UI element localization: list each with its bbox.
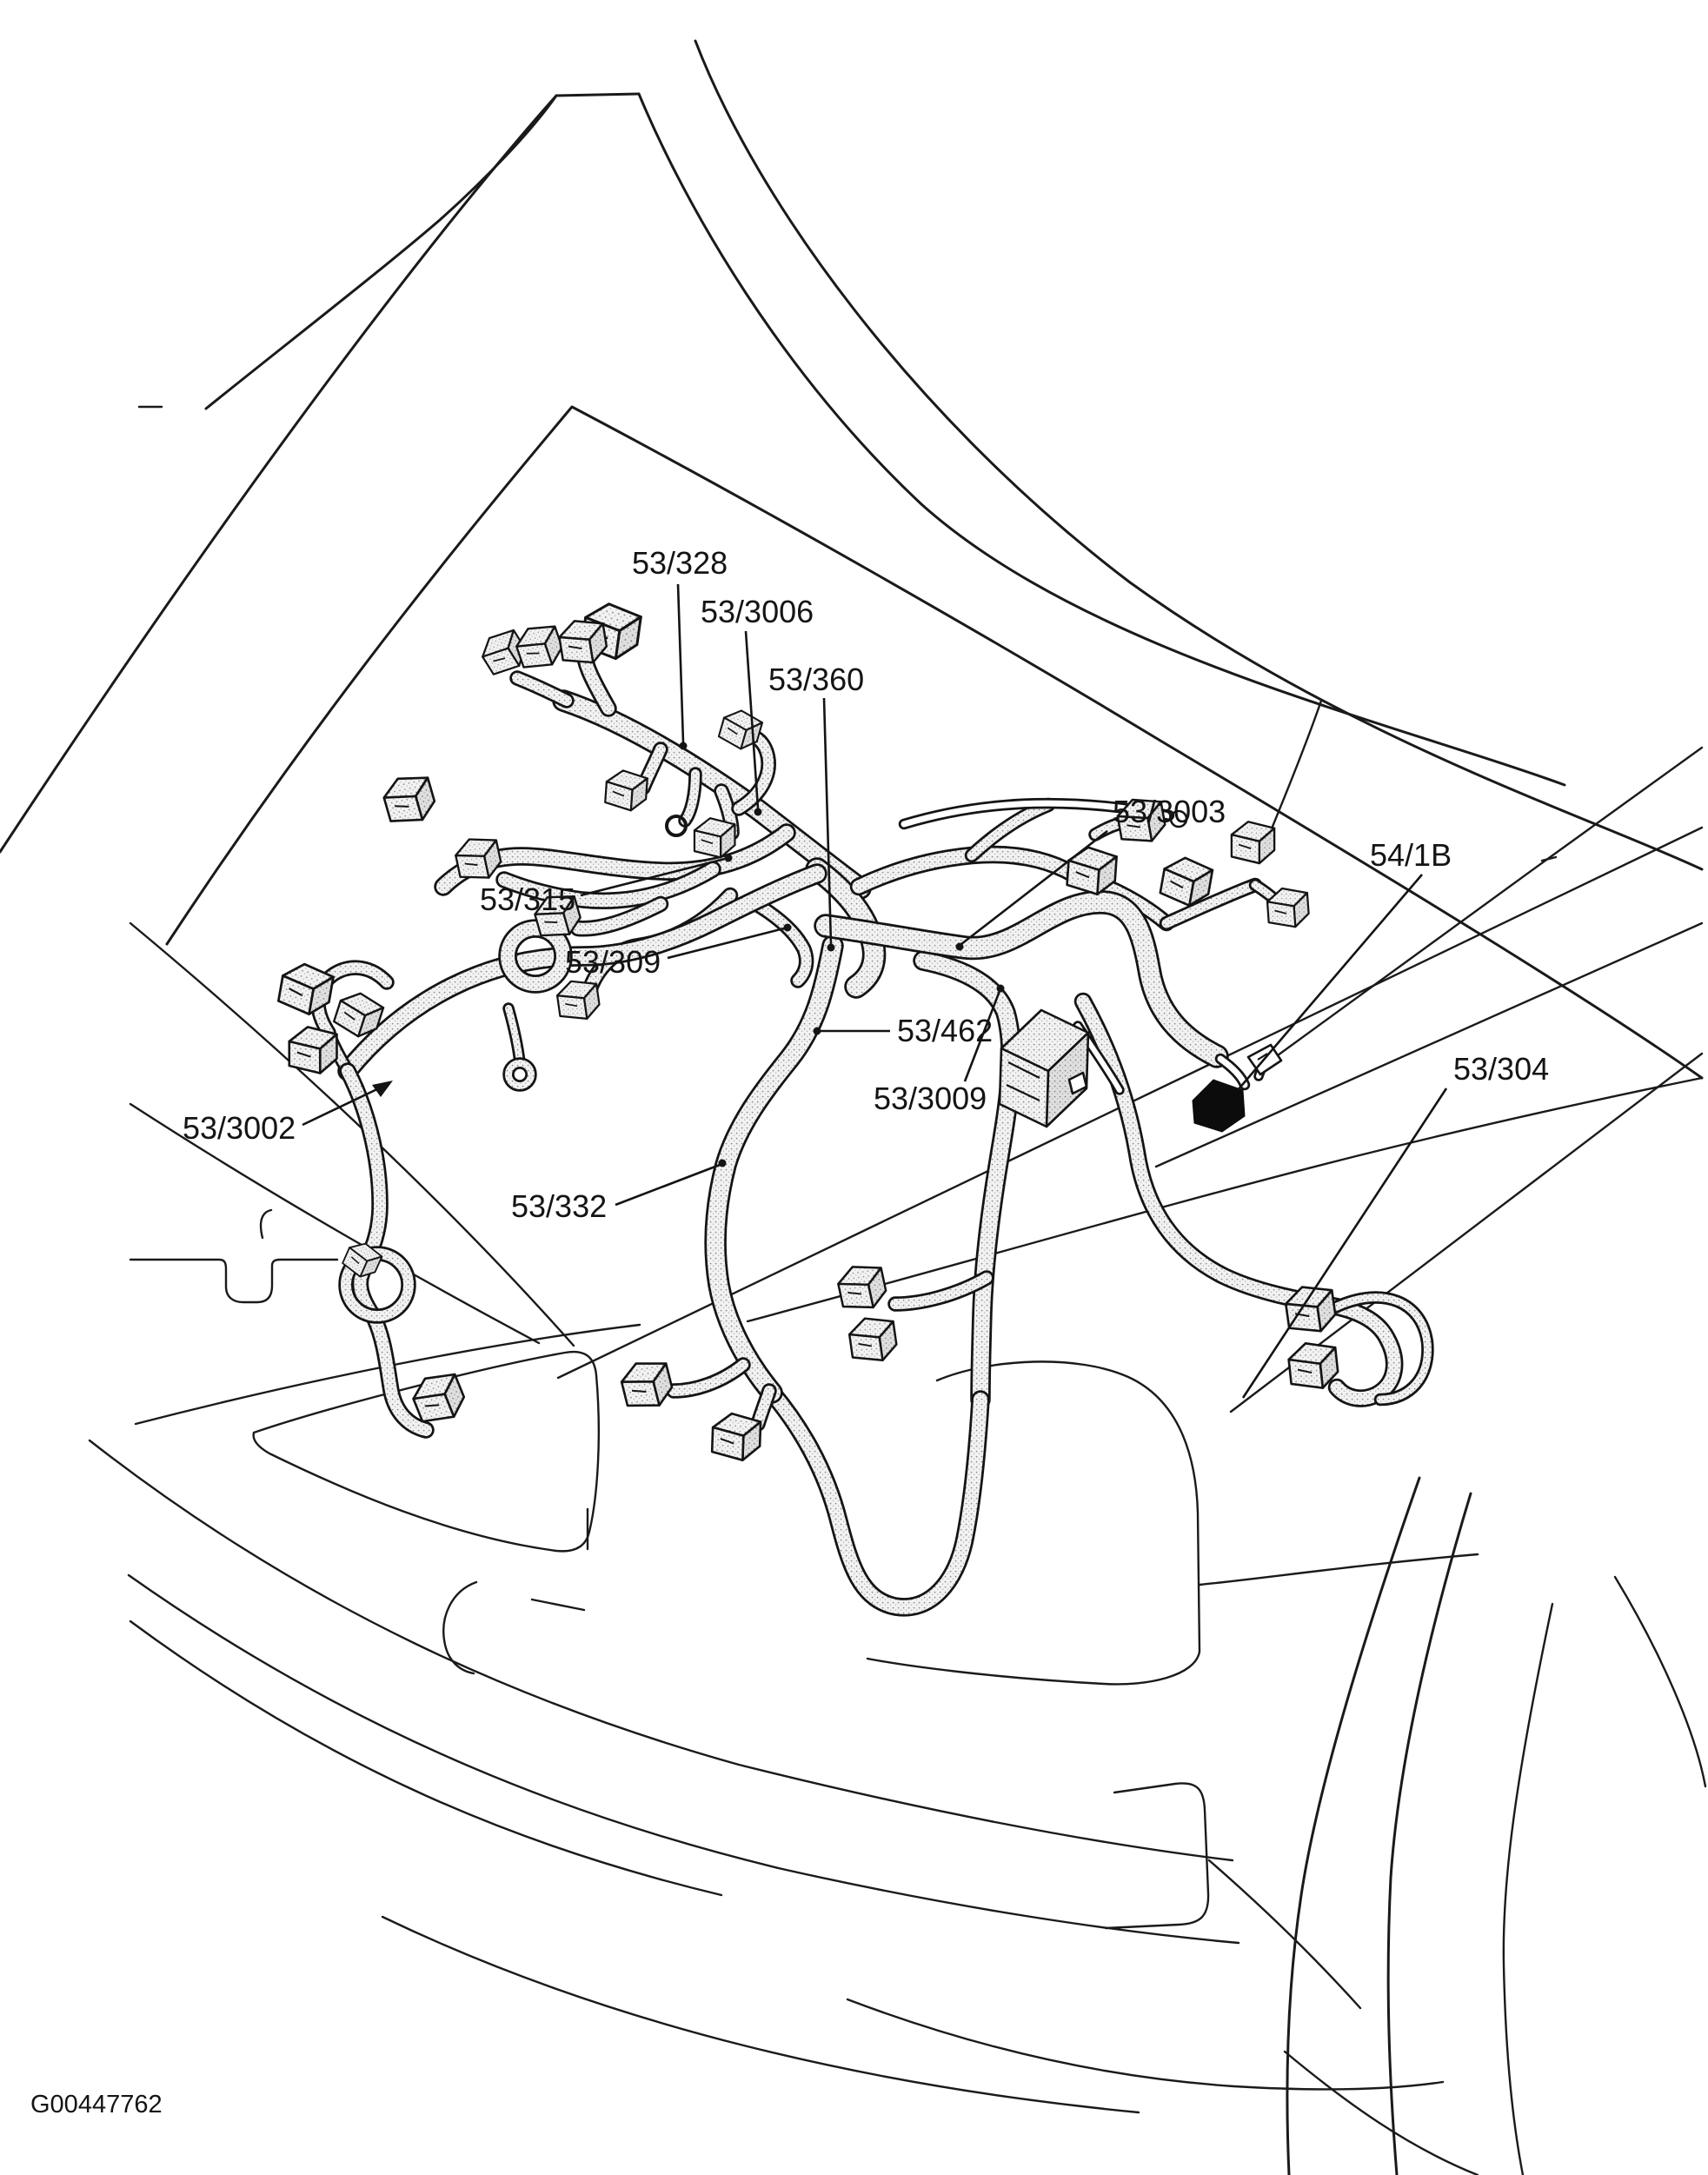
callout-53-328: 53/328 [632, 545, 728, 581]
bumper-lower-1 [382, 1917, 1139, 2112]
bumper-sweep-2 [129, 1575, 1239, 1943]
connector-icon [693, 817, 737, 858]
callout-53-315: 53/315 [480, 881, 575, 917]
droop-loop [772, 1393, 980, 1607]
figure-id: G00447762 [30, 2091, 163, 2118]
car-body-outline [0, 41, 1705, 2175]
hood-inner-edge [167, 407, 1702, 1078]
headlight-bracket [130, 1260, 337, 1302]
hood-peak-left [0, 94, 639, 852]
headlight-bracket-curl [261, 1210, 271, 1238]
connector-icon [276, 960, 336, 1018]
airbox-dome [867, 1361, 1200, 1684]
connector-icon [381, 772, 438, 827]
trunk-304 [1083, 1001, 1394, 1399]
diagram-page: 53/328 53/3006 53/360 53/3003 54/1B 53/3… [0, 0, 1708, 2175]
leader-arrowhead [372, 1081, 393, 1097]
cowl-line [1267, 701, 1321, 840]
callout-53-3003: 53/3003 [1113, 794, 1226, 829]
connector-icon [836, 1263, 888, 1312]
leader-53-304 [1243, 1088, 1446, 1398]
callout-53-462: 53/462 [897, 1013, 993, 1048]
wiring-harness-diagram: 53/328 53/3006 53/360 53/3003 54/1B 53/3… [0, 0, 1708, 2175]
callout-53-304: 53/304 [1453, 1051, 1549, 1087]
callout-53-332: 53/332 [511, 1188, 607, 1224]
eyelet-terminal [508, 1063, 531, 1086]
connector-icon [287, 1026, 338, 1074]
callout-53-360: 53/360 [768, 662, 864, 697]
callout-53-3009: 53/3009 [874, 1081, 987, 1116]
bumper-corner [1285, 2052, 1478, 2175]
leader-54-1B [1238, 875, 1422, 1090]
tire-shoulder [1615, 1577, 1705, 1786]
fog-recess-crease [1209, 1860, 1360, 2008]
callout-53-3002: 53/3002 [183, 1110, 296, 1146]
hood-left-branch [206, 96, 556, 409]
grille-dash [532, 1600, 584, 1610]
callout-53-3006: 53/3006 [701, 594, 814, 629]
connector-icon [513, 622, 566, 672]
connector-icon [710, 1412, 763, 1462]
trunk-304 [1083, 1001, 1394, 1399]
bumper-sweep-1 [90, 1440, 1233, 1860]
connector-icon [1230, 821, 1277, 864]
connector-icon [619, 1358, 675, 1411]
connector-icon [848, 1316, 898, 1362]
black-junction-cube [1193, 1080, 1245, 1132]
connector-icon [556, 980, 601, 1021]
wheel-arch-inner [1388, 1493, 1471, 2175]
callout-54-1B: 54/1B [1370, 837, 1452, 873]
arc-trunk-332 [715, 946, 833, 1393]
bumper-sweep-3 [130, 1621, 721, 1895]
connector-icon [558, 618, 608, 665]
wiring-harness [318, 645, 1427, 1607]
leader-53-332 [615, 1165, 720, 1205]
tire-edge [1504, 1604, 1552, 2175]
leader-53-328 [678, 584, 683, 742]
leader-53-360 [824, 698, 831, 944]
a-pillar-inner [695, 41, 1702, 869]
connector-icon [454, 835, 502, 881]
fender-bottom [1200, 1554, 1478, 1585]
callout-53-309: 53/309 [565, 944, 661, 980]
bumper-lower-2 [847, 1999, 1443, 2089]
